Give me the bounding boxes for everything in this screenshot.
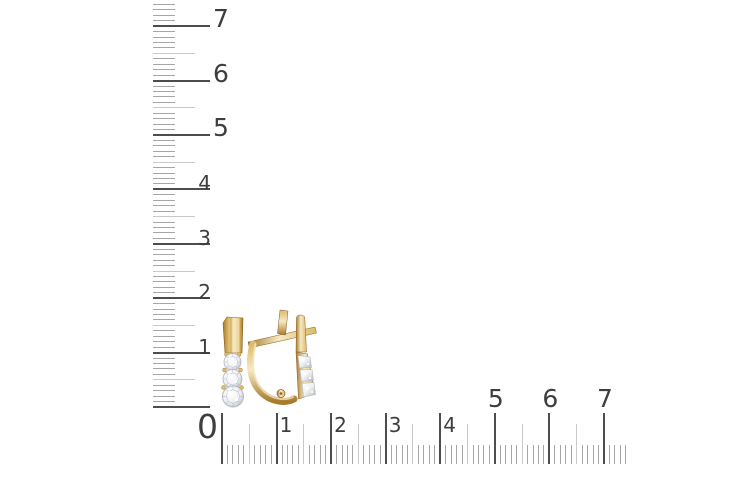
v-tick-minor (153, 319, 175, 320)
v-ruler-label-2: 2 (198, 282, 211, 302)
h-tick-minor (347, 445, 348, 464)
h-tick-minor (429, 445, 430, 464)
v-tick-minor (153, 58, 175, 59)
h-tick-minor (418, 445, 419, 464)
h-tick-minor (489, 445, 490, 464)
v-ruler-label-6: 6 (213, 61, 229, 86)
v-tick-minor (153, 75, 175, 76)
h-tick-minor (227, 445, 228, 464)
v-tick-minor (153, 64, 175, 65)
h-tick-minor (292, 445, 293, 464)
h-tick-half (249, 424, 250, 464)
v-tick-major (153, 134, 210, 136)
v-tick-major (153, 25, 210, 27)
h-tick-minor (254, 445, 255, 464)
h-tick-minor (434, 445, 435, 464)
v-tick-minor (153, 390, 175, 391)
h-tick-major (494, 413, 496, 464)
v-tick-minor (153, 363, 175, 364)
v-tick-minor (153, 385, 175, 386)
v-tick-minor (153, 260, 175, 261)
v-tick-minor (153, 205, 175, 206)
h-tick-minor (625, 445, 626, 464)
v-tick-minor (153, 341, 175, 342)
v-tick-half (153, 379, 195, 380)
v-tick-minor (153, 15, 175, 16)
h-tick-minor (380, 445, 381, 464)
v-tick-minor (153, 113, 175, 114)
v-tick-minor (153, 20, 175, 21)
h-ruler-label-1: 1 (280, 415, 293, 435)
h-tick-minor (287, 445, 288, 464)
v-tick-minor (153, 303, 175, 304)
diamond-stone (224, 354, 241, 371)
v-tick-half (153, 162, 195, 163)
hinge-icon (277, 390, 285, 398)
v-tick-minor (153, 368, 175, 369)
v-tick-minor (153, 281, 175, 282)
h-tick-half (358, 424, 359, 464)
h-tick-minor (451, 445, 452, 464)
h-tick-major (385, 413, 387, 464)
h-tick-half (576, 424, 577, 464)
h-tick-half (522, 424, 523, 464)
v-tick-half (153, 216, 195, 217)
v-tick-half (153, 53, 195, 54)
v-tick-minor (153, 9, 175, 10)
v-tick-minor (153, 140, 175, 141)
h-tick-minor (342, 445, 343, 464)
h-tick-minor (265, 445, 266, 464)
v-tick-half (153, 325, 195, 326)
h-tick-half (303, 424, 304, 464)
v-tick-minor (153, 292, 175, 293)
product-photo: 1234567 1234567 0 (0, 0, 750, 500)
h-tick-minor (565, 445, 566, 464)
v-tick-minor (153, 173, 175, 174)
h-tick-minor (314, 445, 315, 464)
h-tick-minor (445, 445, 446, 464)
h-tick-minor (238, 445, 239, 464)
v-tick-minor (153, 102, 175, 103)
h-tick-minor (620, 445, 621, 464)
h-ruler-label-6: 6 (542, 386, 558, 411)
h-tick-minor (363, 445, 364, 464)
h-ruler-label-3: 3 (389, 415, 402, 435)
v-tick-minor (153, 124, 175, 125)
h-tick-minor (320, 445, 321, 464)
h-tick-minor (456, 445, 457, 464)
v-tick-minor (153, 91, 175, 92)
h-tick-minor (609, 445, 610, 464)
h-tick-minor (282, 445, 283, 464)
v-ruler-label-3: 3 (198, 228, 211, 248)
v-tick-minor (153, 314, 175, 315)
h-tick-minor (516, 445, 517, 464)
v-tick-minor (153, 238, 175, 239)
h-tick-half (467, 424, 468, 464)
v-tick-minor (153, 401, 175, 402)
v-tick-minor (153, 118, 175, 119)
v-tick-minor (153, 276, 175, 277)
v-tick-minor (153, 4, 175, 5)
v-tick-minor (153, 227, 175, 228)
h-tick-minor (571, 445, 572, 464)
v-tick-minor (153, 347, 175, 348)
v-tick-minor (153, 31, 175, 32)
h-tick-minor (554, 445, 555, 464)
h-tick-minor (614, 445, 615, 464)
h-tick-minor (407, 445, 408, 464)
v-tick-minor (153, 47, 175, 48)
h-tick-minor (396, 445, 397, 464)
h-tick-minor (325, 445, 326, 464)
v-tick-minor (153, 211, 175, 212)
h-tick-minor (391, 445, 392, 464)
v-tick-major (153, 80, 210, 82)
v-tick-half (153, 271, 195, 272)
v-tick-minor (153, 86, 175, 87)
h-tick-minor (527, 445, 528, 464)
v-tick-minor (153, 156, 175, 157)
h-tick-minor (232, 445, 233, 464)
h-tick-minor (352, 445, 353, 464)
v-tick-minor (153, 330, 175, 331)
v-ruler-label-7: 7 (213, 6, 229, 31)
h-tick-major (548, 413, 550, 464)
h-tick-minor (473, 445, 474, 464)
h-tick-minor (483, 445, 484, 464)
v-ruler-label-5: 5 (213, 115, 229, 140)
v-tick-minor (153, 37, 175, 38)
h-ruler-label-7: 7 (597, 386, 613, 411)
v-tick-minor (153, 265, 175, 266)
v-tick-minor (153, 396, 175, 397)
v-ruler-label-4: 4 (198, 173, 211, 193)
earring-post (296, 315, 307, 352)
ruler-origin-label: 0 (197, 410, 218, 443)
h-ruler-label-2: 2 (334, 415, 347, 435)
h-tick-major (221, 413, 223, 464)
h-tick-minor (374, 445, 375, 464)
v-tick-minor (153, 167, 175, 168)
h-tick-minor (543, 445, 544, 464)
v-tick-minor (153, 69, 175, 70)
v-tick-minor (153, 249, 175, 250)
h-ruler-label-4: 4 (443, 415, 456, 435)
v-ruler-label-1: 1 (198, 337, 211, 357)
h-tick-minor (260, 445, 261, 464)
v-tick-minor (153, 232, 175, 233)
h-tick-minor (271, 445, 272, 464)
h-tick-minor (598, 445, 599, 464)
v-tick-minor (153, 222, 175, 223)
h-tick-minor (462, 445, 463, 464)
v-tick-minor (153, 200, 175, 201)
v-tick-minor (153, 96, 175, 97)
h-tick-major (276, 413, 278, 464)
h-tick-minor (423, 445, 424, 464)
h-tick-minor (505, 445, 506, 464)
v-tick-minor (153, 183, 175, 184)
h-tick-minor (402, 445, 403, 464)
h-tick-major (330, 413, 332, 464)
h-tick-minor (582, 445, 583, 464)
v-tick-minor (153, 178, 175, 179)
h-tick-minor (511, 445, 512, 464)
h-tick-minor (593, 445, 594, 464)
h-tick-minor (538, 445, 539, 464)
h-tick-minor (369, 445, 370, 464)
diamond-stone (223, 386, 244, 407)
v-tick-minor (153, 129, 175, 130)
h-tick-minor (587, 445, 588, 464)
v-tick-minor (153, 287, 175, 288)
v-tick-minor (153, 254, 175, 255)
h-tick-minor (533, 445, 534, 464)
v-tick-minor (153, 336, 175, 337)
earring-front-view (218, 314, 248, 410)
v-tick-half (153, 107, 195, 108)
h-ruler-label-5: 5 (488, 386, 504, 411)
hook-wire (250, 344, 294, 401)
h-tick-minor (243, 445, 244, 464)
h-tick-minor (500, 445, 501, 464)
v-tick-minor (153, 309, 175, 310)
v-tick-minor (153, 145, 175, 146)
v-tick-minor (153, 194, 175, 195)
h-tick-half (412, 424, 413, 464)
h-tick-minor (309, 445, 310, 464)
earring-gold-bar (223, 317, 243, 353)
h-tick-major (603, 413, 605, 464)
h-tick-minor (478, 445, 479, 464)
v-tick-minor (153, 151, 175, 152)
h-tick-minor (336, 445, 337, 464)
h-tick-minor (298, 445, 299, 464)
lock-top-stub (278, 310, 289, 335)
v-tick-minor (153, 374, 175, 375)
h-tick-minor (560, 445, 561, 464)
h-tick-major (439, 413, 441, 464)
v-tick-minor (153, 358, 175, 359)
earring-side-view (246, 308, 324, 406)
v-tick-minor (153, 42, 175, 43)
